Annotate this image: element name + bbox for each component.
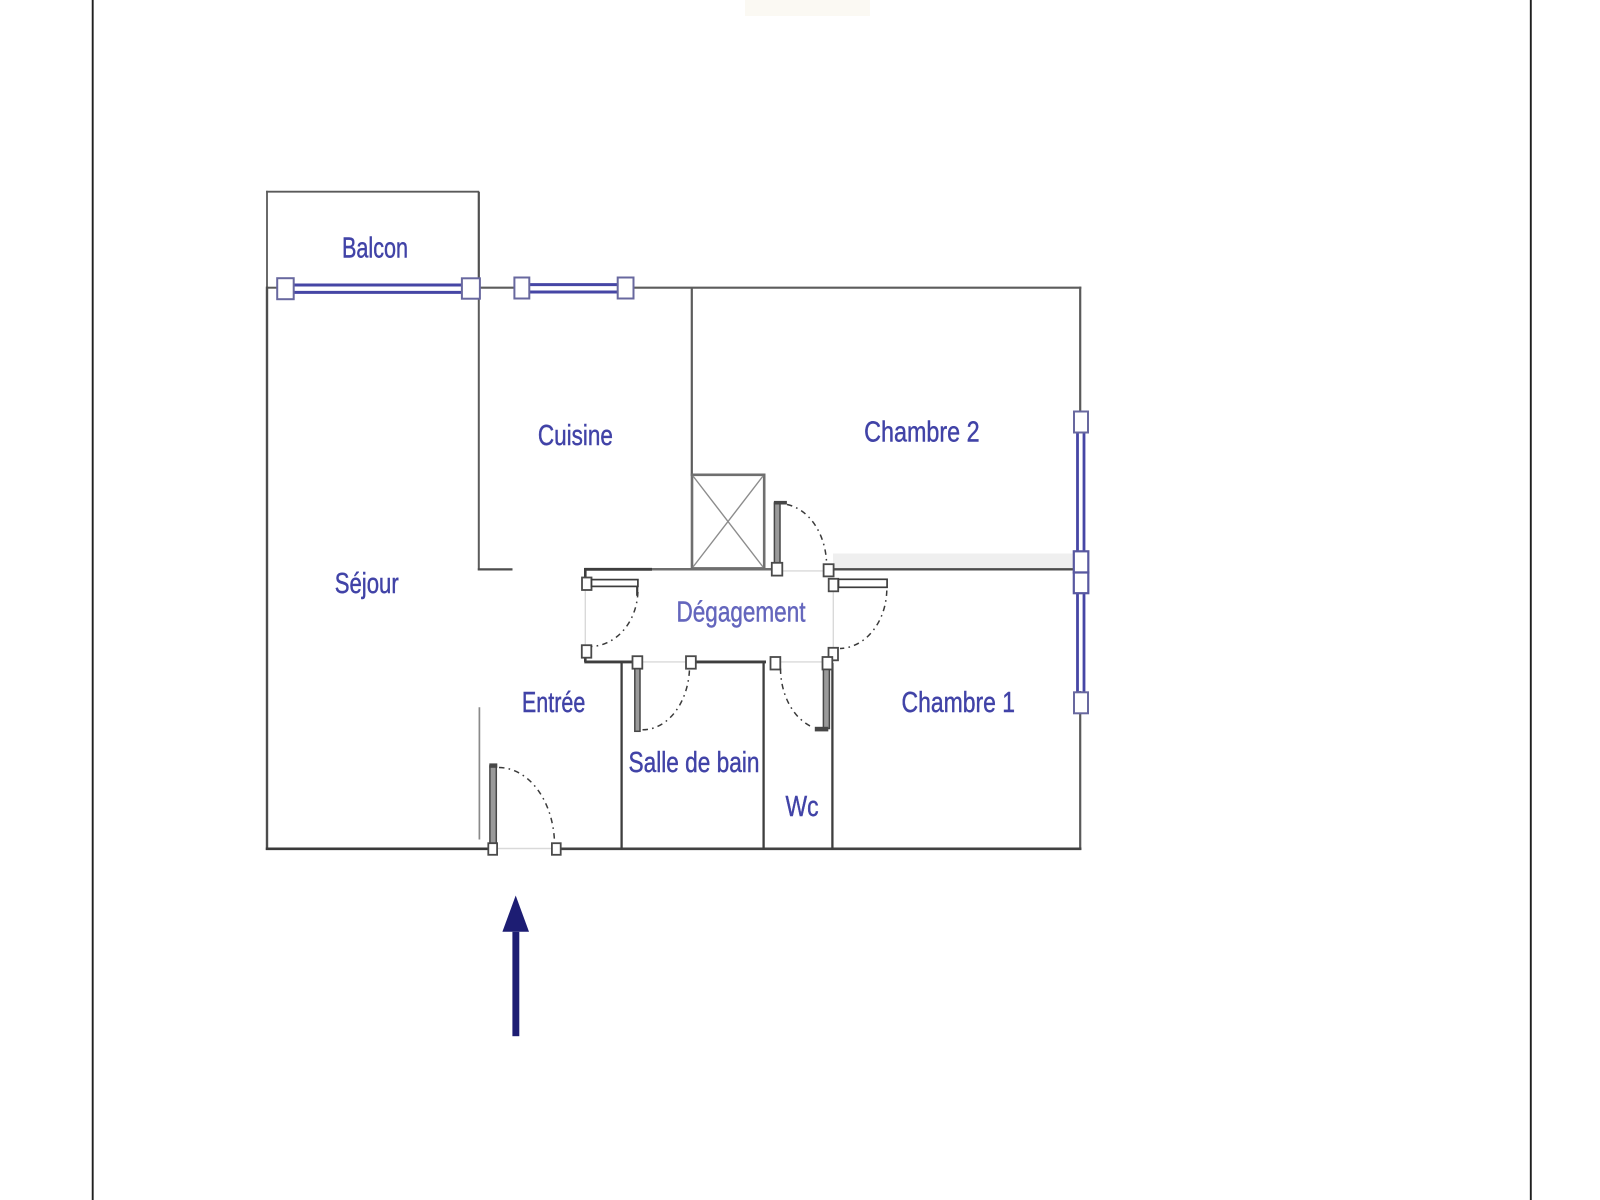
svg-text:Dégagement: Dégagement [677,597,806,629]
svg-text:Entrée: Entrée [522,687,586,719]
svg-text:Séjour: Séjour [335,568,399,600]
svg-text:Wc: Wc [786,791,819,823]
svg-text:Chambre 2: Chambre 2 [864,417,980,449]
svg-text:Balcon: Balcon [342,233,408,265]
svg-text:Salle de bain: Salle de bain [629,747,760,779]
svg-text:Chambre 1: Chambre 1 [902,687,1016,719]
svg-text:Cuisine: Cuisine [538,420,613,452]
